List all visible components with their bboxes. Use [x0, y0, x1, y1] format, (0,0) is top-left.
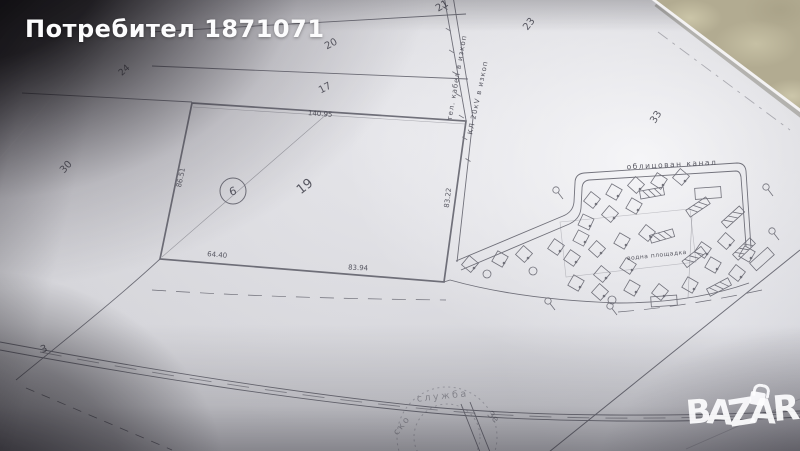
stamp-text-left: ско — [392, 414, 413, 437]
annotation-labels: тел. кабел в изкоп КЛ 20кV в изкоп облиц… — [446, 34, 718, 262]
paper-edge-shadow — [656, 4, 800, 116]
logo-letter: R — [771, 391, 800, 428]
parcel-19-label: 19 — [294, 176, 316, 198]
parcel-19-boundary — [160, 103, 466, 282]
parcel-21-label: 21 — [434, 0, 451, 14]
parcel-17-label: 17 — [317, 81, 333, 97]
paper-edge-highlight — [651, 0, 800, 111]
dimension-left: 86.51 — [175, 167, 187, 188]
dimension-top: 140.95 — [308, 109, 333, 119]
dimension-labels: 140.95 86.51 83.22 64.40 83.94 — [175, 109, 453, 272]
parcel-20-label: 20 — [323, 37, 339, 53]
facility-symbols — [443, 7, 780, 316]
facility-label: водна площадка — [627, 249, 687, 262]
telecom-cable-label: тел. кабел в изкоп — [446, 34, 469, 121]
stamp-text-top: служба — [416, 388, 469, 404]
canal-label: облицован канал — [626, 158, 717, 172]
shopping-bag-icon — [749, 391, 766, 406]
parcel-33-label: 33 — [648, 109, 664, 126]
dimension-right: 83.22 — [443, 187, 453, 208]
parcel-3-label: 3 — [39, 343, 49, 356]
photo-of-cadastral-plan: ско служба Зе 140.95 86.51 83.22 64.40 8… — [0, 0, 800, 451]
parcel-23-label: 23 — [521, 16, 538, 33]
user-watermark: Потребител 1871071 — [25, 15, 325, 43]
bazar-logo: BAZAR — [686, 392, 800, 450]
plan-drawing: ско служба Зе 140.95 86.51 83.22 64.40 8… — [0, 0, 800, 451]
map-border-dashdot — [658, 32, 790, 130]
parcel-6-label: 6 — [228, 184, 239, 199]
parcel-30-label: 30 — [58, 159, 75, 176]
dimension-bottom-left: 64.40 — [207, 250, 228, 260]
dimension-bottom: 83.94 — [348, 263, 369, 272]
round-stamp: ско служба Зе — [392, 387, 501, 451]
parcel-labels: 19 6 17 20 21 23 33 30 24 3 — [39, 0, 664, 356]
canal-outline — [444, 163, 751, 303]
parcel-24-label: 24 — [117, 63, 132, 78]
